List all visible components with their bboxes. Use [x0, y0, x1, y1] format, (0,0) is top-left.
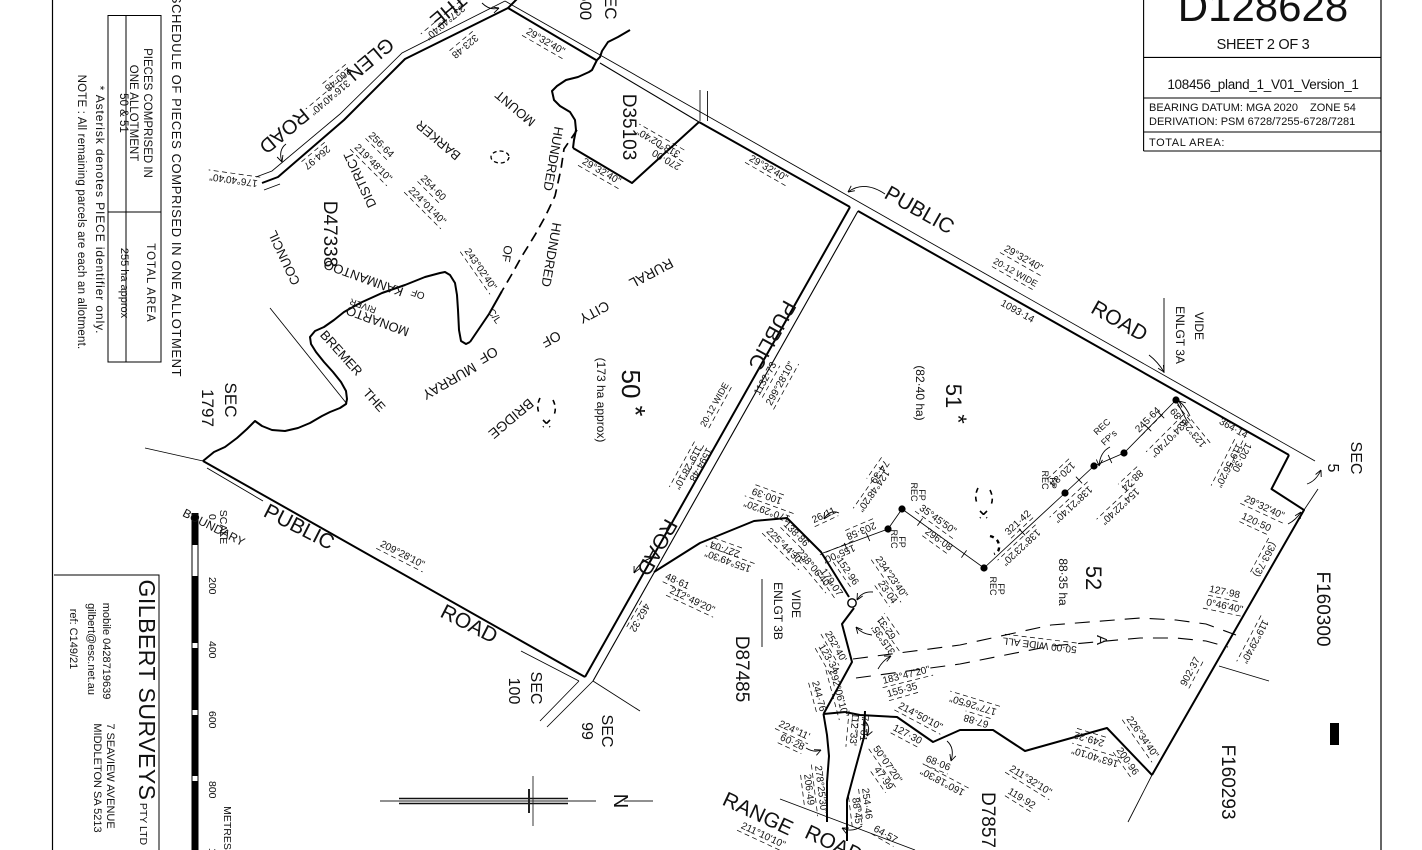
- svg-text:52: 52: [1081, 566, 1106, 590]
- svg-text:1797: 1797: [198, 389, 217, 427]
- svg-text:NOTE : All remaining parcels a: NOTE : All remaining parcels are each an…: [75, 75, 87, 350]
- svg-text:99: 99: [578, 722, 595, 740]
- svg-text:ZONE 54: ZONE 54: [1310, 102, 1356, 114]
- svg-text:51: 51: [941, 384, 966, 408]
- svg-text:mobile 0428719639: mobile 0428719639: [100, 603, 112, 700]
- svg-text:SEC: SEC: [1347, 442, 1364, 475]
- svg-text:F160293: F160293: [1217, 744, 1238, 819]
- svg-text:OF: OF: [499, 244, 516, 263]
- svg-text:FP: FP: [1048, 477, 1058, 489]
- svg-text:SEC: SEC: [221, 383, 240, 418]
- svg-text:TOTAL AREA:: TOTAL AREA:: [1149, 137, 1225, 149]
- svg-text:5: 5: [1324, 464, 1341, 473]
- svg-text:BEARING DATUM: MGA 2020: BEARING DATUM: MGA 2020: [1149, 102, 1298, 114]
- svg-text:800: 800: [206, 781, 218, 799]
- svg-text:108456_pland_1_V01_Version_1: 108456_pland_1_V01_Version_1: [1167, 77, 1358, 92]
- svg-text:N: N: [609, 794, 631, 808]
- svg-text:SHEET 2 OF 3: SHEET 2 OF 3: [1217, 37, 1310, 53]
- svg-text:* Asterisk denotes PIECE ident: * Asterisk denotes PIECE identifier only…: [93, 86, 107, 335]
- svg-text:7 SEAVIEW AVENUE: 7 SEAVIEW AVENUE: [104, 723, 116, 828]
- svg-text:A: A: [1093, 635, 1110, 645]
- svg-text:FP: FP: [996, 583, 1006, 595]
- svg-text:D47338: D47338: [319, 201, 340, 268]
- svg-text:D128628: D128628: [1178, 0, 1348, 30]
- svg-text:200: 200: [206, 577, 218, 595]
- svg-text:(82·40 ha): (82·40 ha): [913, 365, 927, 420]
- svg-text:PTY LTD: PTY LTD: [137, 803, 149, 846]
- svg-text:(173 ha approx): (173 ha approx): [594, 358, 608, 443]
- svg-text:FP: FP: [917, 489, 927, 501]
- svg-text:GILBERT SURVEYS: GILBERT SURVEYS: [134, 580, 160, 801]
- svg-text:88·35 ha: 88·35 ha: [1056, 558, 1070, 606]
- svg-text:50: 50: [616, 370, 646, 399]
- svg-text:D87485: D87485: [731, 636, 752, 703]
- svg-text:VIDE: VIDE: [1192, 312, 1206, 340]
- svg-text:ENLGT 3A: ENLGT 3A: [1173, 306, 1187, 364]
- svg-text:TOTAL AREA: TOTAL AREA: [144, 243, 156, 322]
- svg-text:METRES: METRES: [221, 806, 233, 850]
- svg-text:400: 400: [206, 641, 218, 659]
- svg-text:500: 500: [576, 0, 595, 20]
- svg-text:100: 100: [505, 678, 522, 705]
- svg-text:F160300: F160300: [1312, 571, 1333, 646]
- svg-text:D7857: D7857: [977, 792, 998, 848]
- svg-text:*: *: [944, 414, 971, 423]
- svg-text:600: 600: [206, 711, 218, 729]
- svg-text:255 ha approx: 255 ha approx: [118, 248, 130, 319]
- svg-text:74·81: 74·81: [857, 715, 870, 742]
- svg-text:*: *: [620, 406, 651, 417]
- svg-text:VIDE: VIDE: [789, 590, 803, 618]
- svg-text:ref: C149/21: ref: C149/21: [67, 609, 79, 670]
- svg-text:ENLGT 3B: ENLGT 3B: [771, 582, 785, 640]
- svg-text:MIDDLETON SA 5213: MIDDLETON SA 5213: [91, 723, 103, 832]
- svg-text:SCHEDULE OF PIECES COMPRISED I: SCHEDULE OF PIECES COMPRISED IN ONE ALLO…: [169, 0, 184, 377]
- svg-text:50 & 51: 50 & 51: [117, 93, 129, 133]
- svg-text:D35103: D35103: [618, 94, 639, 161]
- svg-text:SEC: SEC: [601, 0, 620, 19]
- svg-text:SEC: SEC: [527, 672, 544, 705]
- svg-text:FP: FP: [897, 536, 907, 548]
- svg-text:DERIVATION: PSM 6728/7255-6728: DERIVATION: PSM 6728/7255-6728/7281: [1149, 116, 1355, 128]
- svg-text:gilbert@esc.net.au: gilbert@esc.net.au: [85, 603, 97, 695]
- svg-text:SEC: SEC: [598, 715, 615, 748]
